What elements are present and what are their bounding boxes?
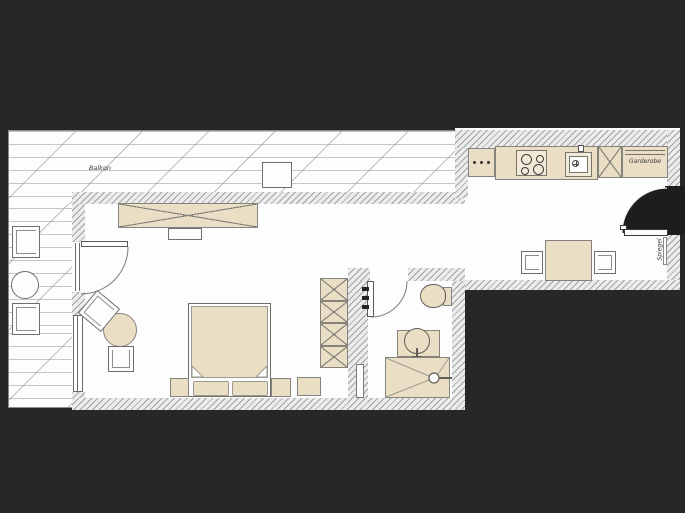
floor-plan: Garderobe Balkon Spiegel: [0, 0, 685, 513]
entry-opening-black: [665, 186, 685, 235]
mirror-label: Spiegel: [657, 230, 664, 270]
plan-overlay: [0, 0, 685, 513]
balcony-door-swing-arc: [81, 247, 128, 294]
bathroom-door-swing-arc: [371, 281, 407, 317]
shower-drain: [429, 373, 439, 383]
balcony-label: Balkon: [80, 164, 120, 172]
entry-door-swing-sector: [622, 188, 667, 233]
wall-mirror: [663, 237, 667, 265]
shower-slope-line-1: [386, 358, 429, 376]
shower-slope-line-2: [386, 380, 429, 397]
blanket-fold-left: [192, 366, 203, 377]
blanket-fold-right: [256, 366, 267, 377]
entry-door-handle: [620, 225, 627, 230]
shower-slope-line-3: [438, 358, 449, 374]
